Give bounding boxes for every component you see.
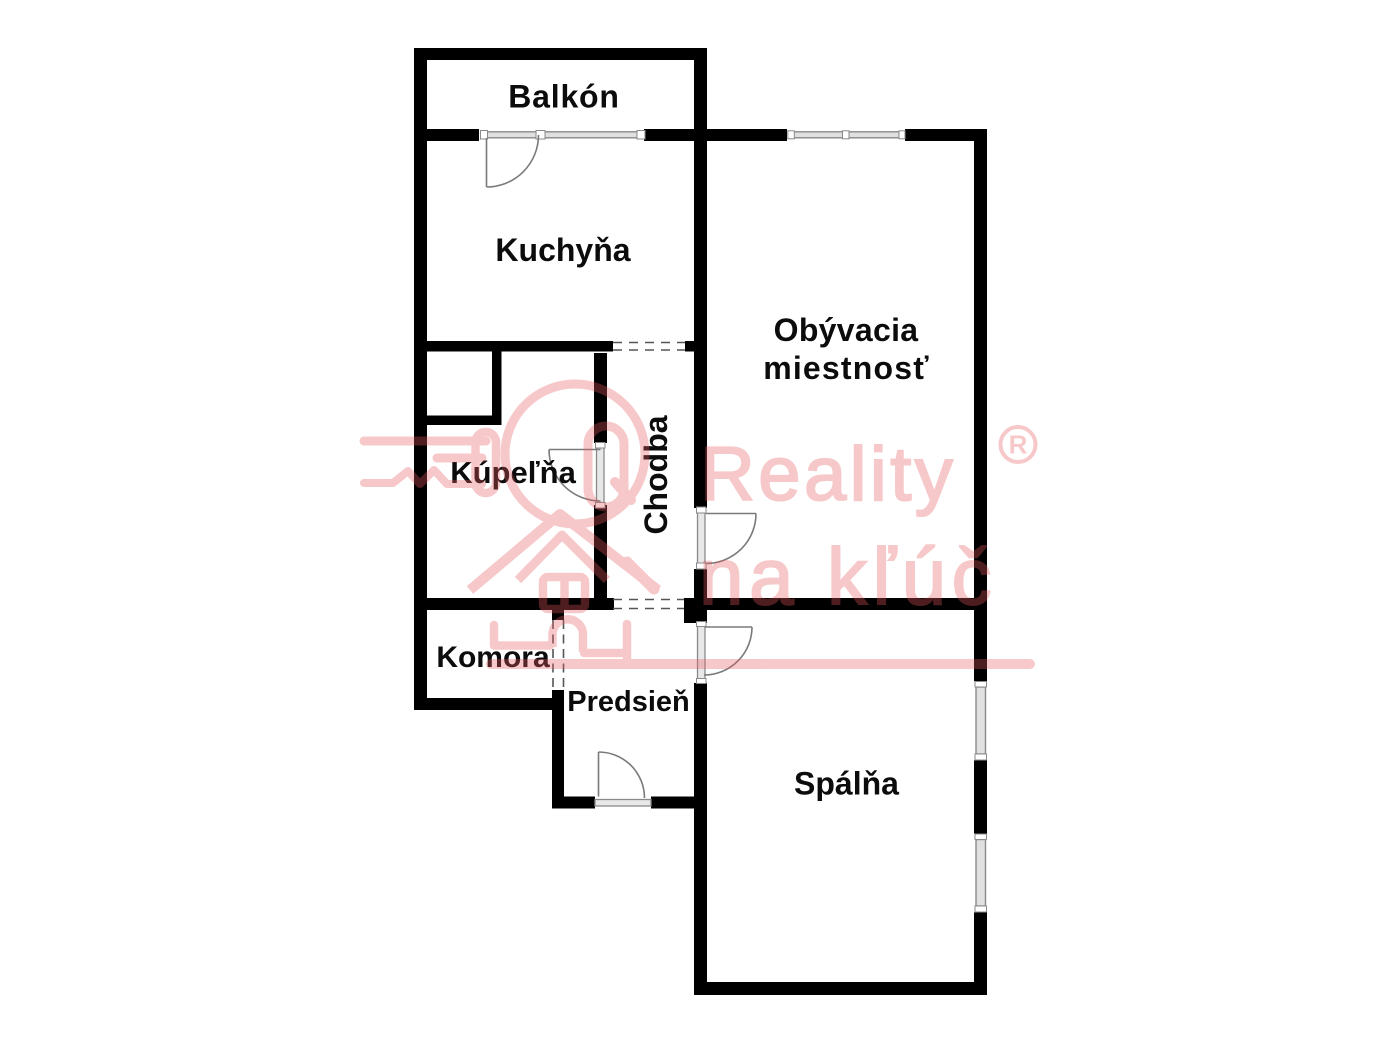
svg-text:Predsieň: Predsieň xyxy=(567,686,690,718)
svg-text:Kuchyňa: Kuchyňa xyxy=(495,232,630,268)
svg-text:na kľúč: na kľúč xyxy=(699,532,997,621)
svg-text:Reality: Reality xyxy=(700,432,956,517)
svg-text:Balkón: Balkón xyxy=(508,79,620,115)
svg-text:Spálňa: Spálňa xyxy=(794,766,899,802)
svg-text:Obývacia: Obývacia xyxy=(774,312,919,348)
svg-text:R: R xyxy=(1009,430,1028,460)
svg-text:miestnosť: miestnosť xyxy=(763,350,930,386)
